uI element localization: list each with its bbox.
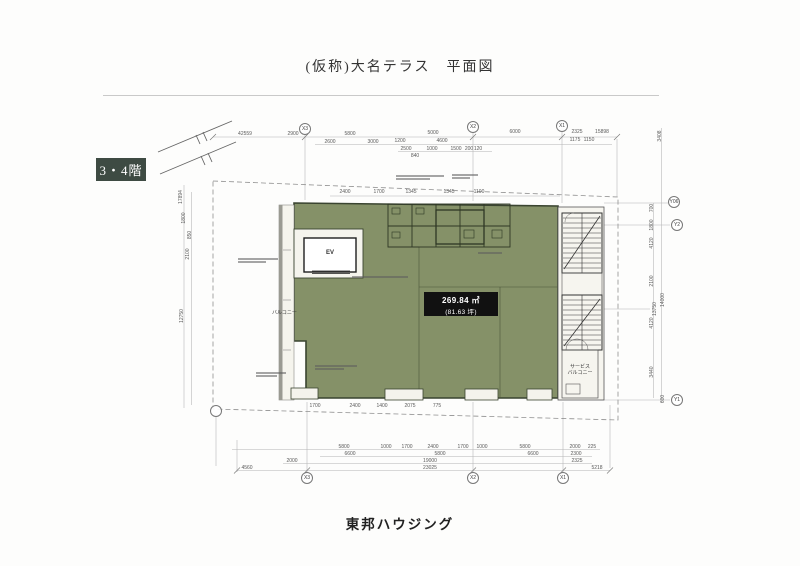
dimension-label: 2400 [339, 189, 350, 195]
dimension-label: 2900 [287, 131, 298, 137]
dimension-label: 2000 [286, 458, 297, 464]
annotation-text [352, 276, 432, 279]
grid-bubble: Y06 [668, 196, 680, 208]
service-balcony-label-line2: バルコニー [561, 370, 599, 376]
grid-bubble: Y2 [671, 219, 683, 231]
dimension-label: 1700 [457, 444, 468, 450]
dimension-label: 2100 [649, 275, 655, 286]
dimension-label: 120 [474, 146, 482, 152]
dimension-label: 4120 [649, 237, 655, 248]
grid-bubble: X1 [557, 472, 569, 484]
dimension-label: 2325 [571, 458, 582, 464]
annotation-text [478, 252, 512, 255]
annotation-text [315, 365, 357, 372]
elevator-label: EV [321, 250, 339, 256]
dimension-label: 2500 [400, 146, 411, 152]
dimension-label: 4600 [436, 138, 447, 144]
dimension-label: 1400 [376, 403, 387, 409]
dimension-label: 1200 [394, 138, 405, 144]
dimension-label: 5800 [519, 444, 530, 450]
area-label-box: 269.84 ㎡ (81.63 坪) [424, 292, 498, 316]
dimension-label: 3408 [657, 130, 663, 141]
dimension-label: 600 [660, 395, 666, 403]
dimension-label: 1345 [443, 189, 454, 195]
dimension-label: 5218 [591, 465, 602, 471]
dimension-label: 1100 [474, 189, 485, 195]
dimension-label: 2300 [570, 451, 581, 457]
dimension-label: 14000 [660, 293, 666, 307]
dimension-label: 2000 [569, 444, 580, 450]
dimension-label: 19000 [423, 458, 437, 464]
annotation-text [238, 258, 278, 265]
dimension-label: 1800 [649, 219, 655, 230]
dimension-label: 700 [649, 204, 655, 212]
dimension-label: 2100 [185, 248, 191, 259]
grid-bubble: X3 [299, 123, 311, 135]
dimension-label: 1700 [373, 189, 384, 195]
balcony-label: バルコニー [272, 309, 297, 316]
dimension-label: 840 [411, 153, 419, 159]
dimension-label: 2075 [404, 403, 415, 409]
area-value-sqm: 269.84 ㎡ [424, 295, 498, 306]
dimension-label: 5000 [427, 130, 438, 136]
grid-bubble: X2 [467, 472, 479, 484]
grid-bubble: X1 [556, 120, 568, 132]
dimension-label: 1000 [476, 444, 487, 450]
dimension-label: 1000 [380, 444, 391, 450]
dimension-label: 1700 [309, 403, 320, 409]
dimension-label: 1175 [570, 137, 581, 143]
dimension-label: 1150 [584, 137, 595, 143]
dimension-label: 1800 [181, 212, 187, 223]
dimension-label: 2600 [324, 139, 335, 145]
dimension-label: 2400 [427, 444, 438, 450]
dimension-label: 6600 [527, 451, 538, 457]
dimension-label: 12750 [179, 309, 185, 323]
dimension-label: 2325 [571, 129, 582, 135]
dimension-label: 15898 [595, 129, 609, 135]
dimension-label: 17894 [178, 190, 184, 204]
grid-bubble [210, 405, 222, 417]
dimension-label: 4120 [649, 317, 655, 328]
dimension-label: 850 [187, 231, 193, 239]
dimension-label: 5800 [434, 451, 445, 457]
dimension-label: 2400 [349, 403, 360, 409]
dimension-label: 775 [433, 403, 441, 409]
grid-bubble: X3 [301, 472, 313, 484]
dimension-label: 5800 [338, 444, 349, 450]
service-balcony-label: サービス バルコニー [561, 364, 599, 376]
dimension-label: 4560 [241, 465, 252, 471]
area-value-tsubo: (81.63 坪) [424, 306, 498, 316]
dimension-label: 23025 [423, 465, 437, 471]
dimension-label: 200 [465, 146, 473, 152]
dimension-layer: 4255929005800500060002325158982600300012… [0, 0, 800, 566]
company-name: 東邦ハウジング [0, 513, 800, 533]
dimension-label: 6000 [509, 129, 520, 135]
dimension-label: 1700 [401, 444, 412, 450]
annotation-text [452, 174, 478, 181]
grid-bubble: Y1 [671, 394, 683, 406]
dimension-label: 1500 [450, 146, 461, 152]
dimension-label: 225 [588, 444, 596, 450]
grid-bubble: X2 [467, 121, 479, 133]
dimension-label: 42559 [238, 131, 252, 137]
dimension-label: 1000 [426, 146, 437, 152]
dimension-label: 5800 [344, 131, 355, 137]
dimension-label: 3440 [649, 366, 655, 377]
annotation-text [396, 175, 444, 182]
dimension-label: 3000 [367, 139, 378, 145]
drawing-sheet: (仮称)大名テラス 平面図 3・4階 [0, 0, 800, 566]
annotation-text [256, 372, 286, 379]
dimension-label: 1345 [405, 189, 416, 195]
dimension-label: 13750 [652, 302, 658, 316]
dimension-label: 6600 [344, 451, 355, 457]
